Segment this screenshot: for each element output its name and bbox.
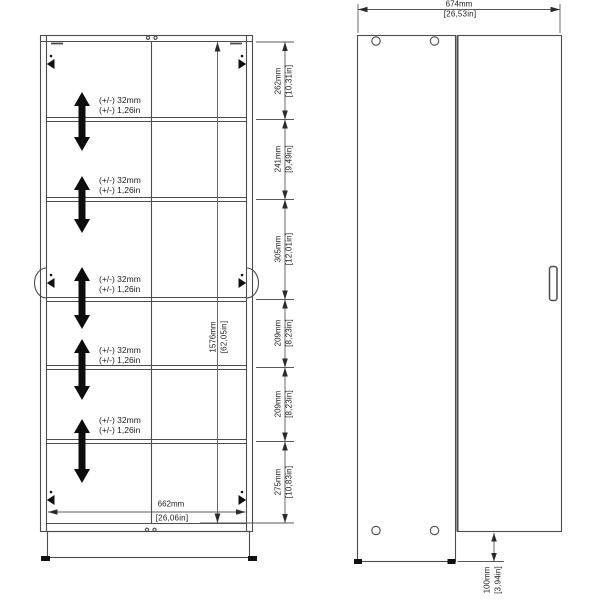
drawing-linework bbox=[0, 0, 600, 600]
foot-icon bbox=[41, 556, 50, 561]
plinth-outline bbox=[48, 532, 250, 558]
shelf-adjust-inch: (+/-) 1,26in bbox=[99, 285, 141, 295]
adjust-arrow-icon bbox=[74, 176, 90, 233]
dowel-hole-icon bbox=[146, 36, 149, 39]
overall-width-dim-inch: [26,53in] bbox=[444, 10, 477, 19]
shelf-adjust-label: (+/-) 32mm (+/-) 1,26in bbox=[99, 176, 141, 195]
dim-inch: [8,23in] bbox=[284, 390, 295, 418]
section-height-dim-209b: 209mm [8,23in] bbox=[274, 390, 295, 418]
foot-icon bbox=[448, 559, 456, 564]
side-panel-outline bbox=[358, 36, 456, 562]
cam-hole-icon bbox=[430, 37, 438, 45]
adjust-arrow-icon bbox=[74, 419, 90, 483]
side-view-dimensions bbox=[358, 4, 560, 562]
dim-mm: 305mm bbox=[274, 233, 285, 266]
furniture-dimension-diagram: (+/-) 32mm (+/-) 1,26in (+/-) 32mm (+/-)… bbox=[0, 0, 600, 600]
side-view-drawing bbox=[354, 36, 562, 565]
dim-mm: 100mm bbox=[482, 566, 493, 594]
dowel-hole-icon bbox=[145, 528, 148, 531]
cam-hole-icon bbox=[372, 37, 380, 45]
section-height-dim-241: 241mm [9,49in] bbox=[274, 145, 295, 173]
shelf-adjust-inch: (+/-) 1,26in bbox=[99, 426, 141, 436]
dim-inch: [12,01in] bbox=[284, 233, 295, 266]
shelf-adjust-arrow-icons bbox=[74, 92, 90, 483]
shelf-adjust-inch: (+/-) 1,26in bbox=[99, 106, 141, 116]
overall-width-dim-mm: 674mm bbox=[446, 0, 473, 9]
dim-mm: 275mm bbox=[274, 466, 285, 499]
front-view-drawing bbox=[35, 36, 259, 562]
shelf-adjust-label: (+/-) 32mm (+/-) 1,26in bbox=[99, 416, 141, 435]
shelf-adjust-inch: (+/-) 1,26in bbox=[99, 356, 141, 366]
foot-icon bbox=[354, 559, 362, 564]
cam-hole-icon bbox=[430, 526, 438, 534]
dim-mm: 241mm bbox=[274, 145, 285, 173]
section-height-dim-262: 262mm [10,31in] bbox=[274, 65, 295, 98]
dim-mm: 1576mm bbox=[208, 321, 219, 354]
section-height-dim-275: 275mm [10,83in] bbox=[274, 466, 295, 499]
dim-inch: [8,23in] bbox=[284, 319, 295, 347]
section-height-dim-305: 305mm [12,01in] bbox=[274, 233, 295, 266]
section-height-dim-209a: 209mm [8,23in] bbox=[274, 319, 295, 347]
cabinet-outline bbox=[41, 36, 253, 532]
dim-inch: [9,49in] bbox=[284, 145, 295, 173]
interior-width-dim-mm: 662mm bbox=[158, 500, 185, 509]
foot-icon bbox=[248, 556, 257, 561]
dowel-hole-icon bbox=[153, 528, 156, 531]
cam-hole-icon bbox=[372, 526, 380, 534]
dim-mm: 262mm bbox=[274, 65, 285, 98]
dowel-hole-icon bbox=[154, 36, 157, 39]
shelf-adjust-label: (+/-) 32mm (+/-) 1,26in bbox=[99, 275, 141, 294]
door-outline bbox=[458, 36, 562, 532]
dim-inch: [62,05in] bbox=[219, 321, 230, 354]
dim-mm: 209mm bbox=[274, 319, 285, 347]
dim-inch: [10,83in] bbox=[284, 466, 295, 499]
interior-width-dim-inch: [26,06in] bbox=[156, 513, 189, 522]
dim-mm: 209mm bbox=[274, 390, 285, 418]
dim-inch: [10,31in] bbox=[284, 65, 295, 98]
dimension-arrowheads bbox=[358, 7, 560, 562]
interior-height-dim: 1576mm [62,05in] bbox=[208, 321, 229, 354]
shelf-adjust-label: (+/-) 32mm (+/-) 1,26in bbox=[99, 96, 141, 115]
dim-inch: [3,94in] bbox=[493, 566, 504, 594]
door-handle bbox=[550, 267, 558, 301]
plinth-height-dim: 100mm [3,94in] bbox=[482, 566, 503, 594]
shelf-adjust-label: (+/-) 32mm (+/-) 1,26in bbox=[99, 346, 141, 365]
shelf-adjust-inch: (+/-) 1,26in bbox=[99, 186, 141, 196]
